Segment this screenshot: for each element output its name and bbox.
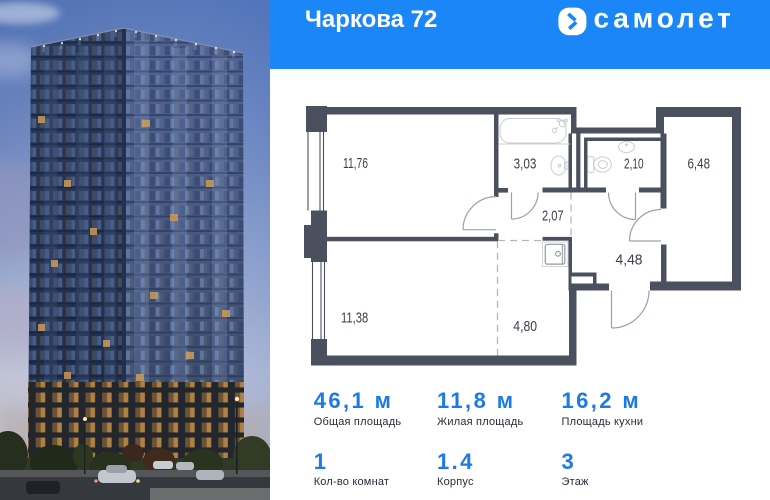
svg-text:11,76: 11,76 xyxy=(343,155,368,172)
svg-text:самолет: самолет xyxy=(594,3,735,34)
svg-text:2,10: 2,10 xyxy=(624,156,644,173)
svg-text:11,38: 11,38 xyxy=(341,310,368,327)
svg-text:2,07: 2,07 xyxy=(542,208,564,225)
svg-text:3,03: 3,03 xyxy=(514,156,537,173)
svg-text:6,48: 6,48 xyxy=(688,156,711,173)
svg-text:4,48: 4,48 xyxy=(616,251,643,268)
svg-text:4,80: 4,80 xyxy=(513,318,537,335)
